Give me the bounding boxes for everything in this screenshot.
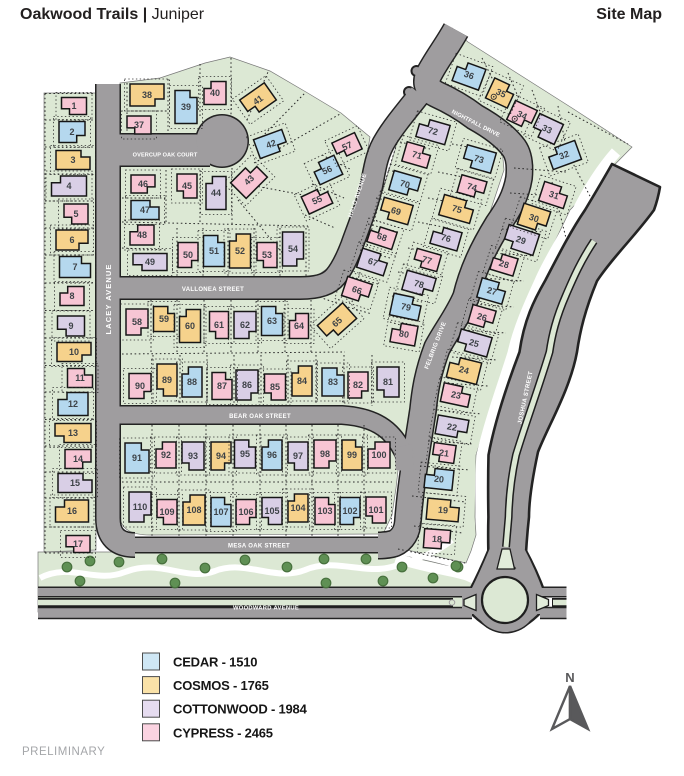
svg-text:104: 104 — [290, 503, 305, 513]
svg-text:60: 60 — [185, 321, 195, 331]
svg-text:97: 97 — [293, 451, 303, 461]
svg-text:9: 9 — [68, 321, 73, 331]
svg-text:62: 62 — [240, 320, 250, 330]
svg-text:99: 99 — [347, 450, 357, 460]
svg-text:21: 21 — [438, 447, 449, 458]
svg-text:98: 98 — [320, 449, 330, 459]
svg-text:110: 110 — [133, 502, 148, 512]
svg-text:84: 84 — [297, 376, 307, 386]
svg-text:7: 7 — [72, 262, 77, 272]
svg-text:COTTONWOOD - 1984: COTTONWOOD - 1984 — [173, 702, 308, 717]
svg-text:51: 51 — [209, 246, 219, 256]
svg-text:4: 4 — [66, 181, 71, 191]
svg-text:8: 8 — [69, 291, 74, 301]
svg-text:108: 108 — [186, 505, 201, 515]
svg-text:49: 49 — [145, 257, 155, 267]
svg-text:15: 15 — [70, 478, 80, 488]
svg-text:40: 40 — [210, 88, 220, 98]
svg-text:93: 93 — [188, 451, 198, 461]
svg-text:11: 11 — [75, 373, 85, 383]
svg-text:95: 95 — [240, 449, 250, 459]
svg-text:50: 50 — [183, 250, 193, 260]
svg-text:91: 91 — [132, 453, 142, 463]
svg-text:1: 1 — [71, 101, 76, 111]
svg-text:22: 22 — [446, 421, 458, 433]
svg-text:CEDAR - 1510: CEDAR - 1510 — [173, 655, 257, 670]
svg-text:81: 81 — [383, 377, 393, 387]
svg-text:VALLONEA STREET: VALLONEA STREET — [182, 287, 244, 293]
svg-text:N: N — [565, 670, 574, 685]
svg-text:47: 47 — [140, 205, 150, 215]
svg-text:39: 39 — [181, 102, 191, 112]
svg-text:BEAR OAK STREET: BEAR OAK STREET — [229, 414, 291, 420]
svg-text:14: 14 — [73, 454, 83, 464]
svg-text:OVERCUP OAK COURT: OVERCUP OAK COURT — [133, 153, 198, 159]
svg-text:96: 96 — [267, 450, 277, 460]
svg-text:79: 79 — [400, 301, 412, 313]
svg-text:90: 90 — [135, 381, 145, 391]
svg-text:CYPRESS - 2465: CYPRESS - 2465 — [173, 725, 273, 740]
svg-text:102: 102 — [342, 506, 357, 516]
svg-text:46: 46 — [138, 179, 148, 189]
svg-text:101: 101 — [368, 505, 383, 515]
svg-text:80: 80 — [398, 328, 410, 340]
svg-text:23: 23 — [450, 389, 462, 401]
svg-text:48: 48 — [137, 230, 147, 240]
svg-text:PRELIMINARY: PRELIMINARY — [22, 746, 105, 758]
svg-text:59: 59 — [159, 314, 169, 324]
svg-text:86: 86 — [242, 380, 252, 390]
svg-text:107: 107 — [213, 507, 228, 517]
svg-text:37: 37 — [134, 120, 144, 130]
svg-text:Oakwood Trails | Juniper: Oakwood Trails | Juniper — [20, 6, 205, 23]
svg-text:17: 17 — [73, 539, 83, 549]
svg-text:106: 106 — [238, 507, 253, 517]
svg-text:10: 10 — [69, 347, 79, 357]
svg-text:58: 58 — [132, 317, 142, 327]
svg-text:105: 105 — [264, 506, 279, 516]
svg-text:44: 44 — [211, 188, 221, 198]
svg-text:5: 5 — [73, 209, 78, 219]
svg-text:63: 63 — [267, 316, 277, 326]
svg-text:COSMOS - 1765: COSMOS - 1765 — [173, 678, 269, 693]
svg-text:85: 85 — [270, 382, 280, 392]
svg-text:6: 6 — [69, 235, 74, 245]
svg-text:61: 61 — [214, 320, 224, 330]
svg-text:94: 94 — [216, 451, 226, 461]
svg-text:89: 89 — [162, 375, 172, 385]
svg-text:54: 54 — [288, 244, 298, 254]
svg-text:53: 53 — [262, 250, 272, 260]
svg-text:Site Map: Site Map — [596, 6, 662, 23]
svg-text:88: 88 — [187, 377, 197, 387]
svg-text:103: 103 — [317, 506, 332, 516]
svg-text:100: 100 — [371, 450, 386, 460]
svg-text:109: 109 — [159, 507, 174, 517]
svg-text:3: 3 — [70, 155, 75, 165]
svg-text:WOODWARD AVENUE: WOODWARD AVENUE — [233, 606, 299, 612]
svg-text:45: 45 — [182, 181, 192, 191]
svg-text:18: 18 — [432, 534, 443, 545]
svg-text:19: 19 — [438, 505, 449, 516]
svg-text:LACEY AVENUE: LACEY AVENUE — [104, 264, 113, 335]
svg-text:52: 52 — [235, 246, 245, 256]
svg-text:92: 92 — [161, 450, 171, 460]
svg-text:83: 83 — [328, 377, 338, 387]
svg-text:38: 38 — [142, 90, 152, 100]
svg-text:12: 12 — [68, 399, 78, 409]
svg-text:MESA OAK STREET: MESA OAK STREET — [228, 544, 290, 550]
svg-text:16: 16 — [67, 506, 77, 516]
svg-text:64: 64 — [294, 321, 304, 331]
svg-text:82: 82 — [353, 380, 363, 390]
svg-text:20: 20 — [433, 474, 444, 485]
svg-text:87: 87 — [217, 381, 227, 391]
svg-text:13: 13 — [68, 428, 78, 438]
svg-text:2: 2 — [69, 127, 74, 137]
